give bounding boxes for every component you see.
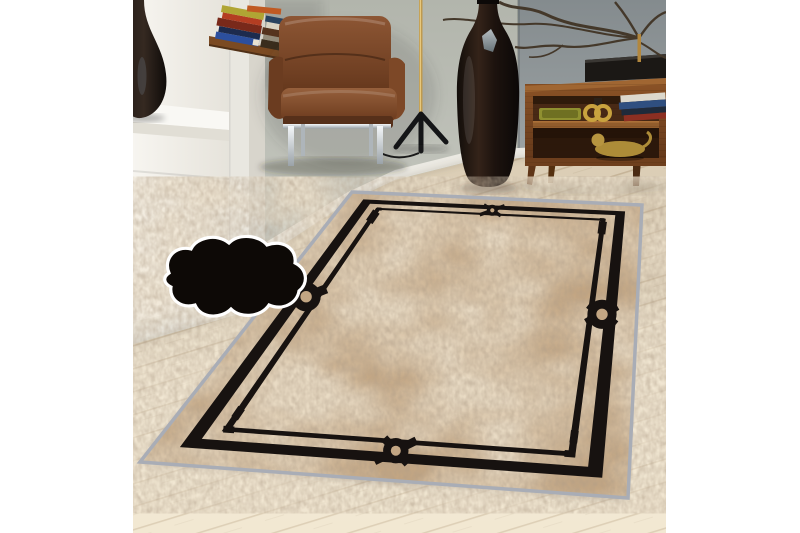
room-scene-svg <box>133 0 666 533</box>
vase-rim <box>477 0 499 4</box>
chrome-rail <box>283 124 391 129</box>
lamp-shadow <box>393 145 449 153</box>
border-bead <box>600 218 605 221</box>
border-bead <box>223 426 234 434</box>
chrome-leg-rear <box>301 124 305 156</box>
motif-ring-hole <box>490 208 494 212</box>
room-photo <box>133 0 666 533</box>
olive-tray-inner <box>542 110 578 118</box>
product-photo-canvas <box>0 0 800 533</box>
border-bead <box>569 430 578 444</box>
lamp-pole-highlight <box>420 0 421 130</box>
vase-gloss <box>463 56 475 144</box>
border-bead <box>377 207 382 210</box>
book-pages <box>252 39 259 46</box>
shelf-books <box>618 92 666 121</box>
chrome-leg-front <box>288 126 294 166</box>
motif-ring-hole <box>391 446 401 456</box>
chair-floor-shadow <box>259 158 407 176</box>
motif-ring-hole <box>596 309 607 320</box>
border-bead <box>598 221 607 235</box>
sculpture-stem <box>638 34 642 62</box>
figurine-head <box>592 134 605 147</box>
chrome-leg-rear <box>369 124 373 156</box>
chair-left-arm <box>268 57 283 119</box>
border-bead <box>564 450 575 458</box>
cloud-outline <box>165 236 306 316</box>
motif-ring-hole <box>300 291 311 302</box>
teardrop-vase-gloss <box>138 57 147 95</box>
chrome-leg-front <box>377 126 383 164</box>
